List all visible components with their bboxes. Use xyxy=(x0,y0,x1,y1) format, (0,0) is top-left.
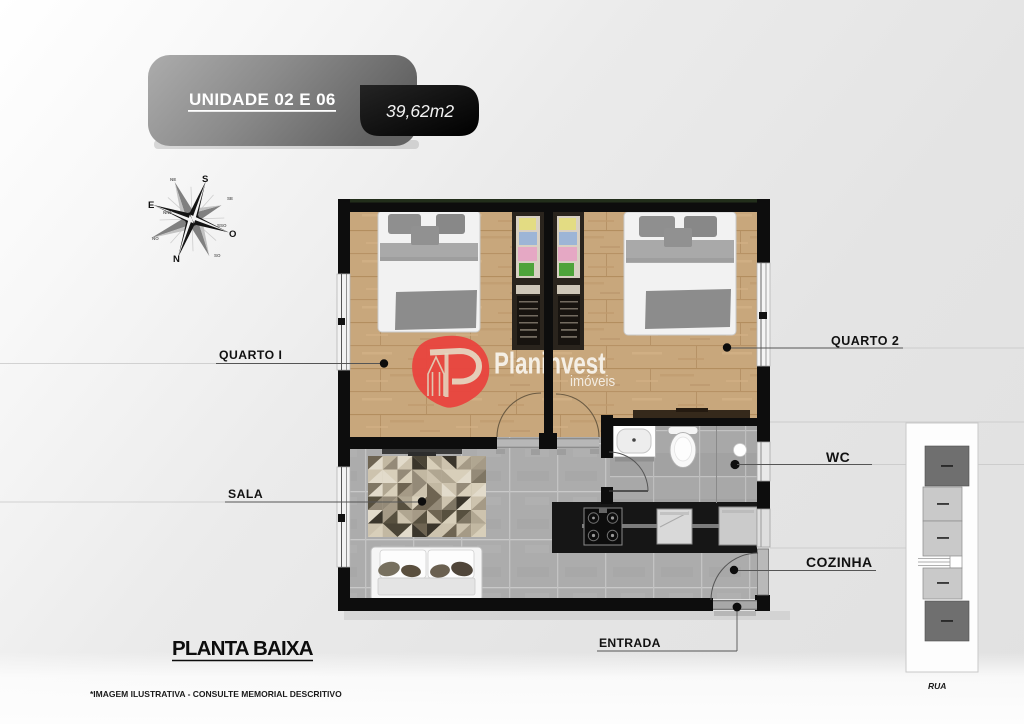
svg-text:N: N xyxy=(173,254,180,265)
svg-text:SSO: SSO xyxy=(217,223,227,228)
svg-text:SALA: SALA xyxy=(228,487,263,501)
svg-text:RUA: RUA xyxy=(928,681,946,691)
svg-text:SE: SE xyxy=(227,196,233,201)
svg-text:ENTRADA: ENTRADA xyxy=(599,636,661,650)
svg-text:E: E xyxy=(148,200,154,211)
svg-text:COZINHA: COZINHA xyxy=(806,554,873,570)
svg-text:PLANTA BAIXA: PLANTA BAIXA xyxy=(172,637,314,660)
svg-text:O: O xyxy=(229,229,236,240)
svg-text:*IMAGEM ILUSTRATIVA - CONSULTE: *IMAGEM ILUSTRATIVA - CONSULTE MEMORIAL … xyxy=(90,689,342,699)
svg-text:S: S xyxy=(202,174,208,185)
svg-text:NNE: NNE xyxy=(163,210,173,215)
svg-text:QUARTO I: QUARTO I xyxy=(219,348,282,362)
svg-text:SO: SO xyxy=(214,253,221,258)
svg-text:imóveis: imóveis xyxy=(570,372,615,389)
svg-text:QUARTO 2: QUARTO 2 xyxy=(831,334,899,348)
svg-text:NO: NO xyxy=(152,236,159,241)
svg-text:NE: NE xyxy=(170,177,176,182)
svg-text:39,62m2: 39,62m2 xyxy=(386,101,454,121)
svg-text:UNIDADE 02 E 06: UNIDADE 02 E 06 xyxy=(189,90,336,109)
svg-text:WC: WC xyxy=(826,449,850,465)
